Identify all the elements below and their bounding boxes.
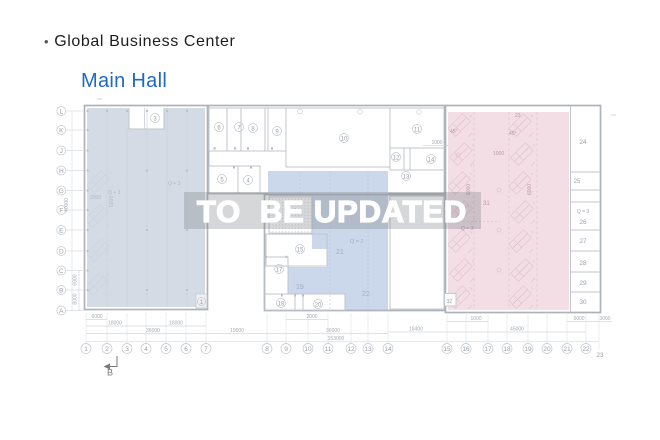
svg-text:Q + 3: Q + 3: [108, 190, 121, 196]
svg-text:9: 9: [284, 346, 288, 353]
svg-text:5: 5: [164, 346, 168, 353]
svg-text:3: 3: [153, 117, 157, 123]
svg-text:J: J: [60, 148, 63, 155]
svg-text:13: 13: [403, 175, 410, 181]
svg-text:22: 22: [582, 346, 590, 353]
svg-text:6: 6: [184, 346, 188, 353]
svg-text:40000: 40000: [64, 198, 70, 212]
svg-text:3: 3: [125, 346, 129, 353]
svg-text:18000: 18000: [169, 321, 183, 327]
svg-text:6000: 6000: [573, 316, 584, 322]
svg-text:2: 2: [105, 346, 109, 353]
svg-text:K: K: [59, 127, 64, 134]
svg-text:6000: 6000: [91, 314, 102, 320]
svg-text:1000: 1000: [493, 151, 504, 157]
svg-text:19000: 19000: [230, 328, 244, 334]
svg-text:14: 14: [384, 346, 392, 353]
svg-text:E: E: [59, 227, 64, 234]
svg-text:L: L: [59, 108, 63, 115]
svg-text:26: 26: [579, 219, 587, 226]
svg-text:4: 4: [144, 346, 148, 353]
svg-text:11: 11: [325, 346, 332, 353]
svg-text:15: 15: [297, 248, 304, 254]
svg-text:18400: 18400: [409, 327, 423, 333]
svg-text:A: A: [59, 308, 64, 315]
svg-text:20: 20: [543, 346, 551, 353]
svg-text:31: 31: [483, 201, 490, 207]
svg-text:23: 23: [515, 113, 521, 119]
svg-text:19: 19: [296, 284, 304, 291]
svg-text:18: 18: [278, 302, 285, 308]
svg-text:153000: 153000: [328, 336, 345, 342]
svg-text:B: B: [107, 368, 113, 378]
svg-text:B: B: [59, 287, 63, 294]
svg-text:6000: 6000: [73, 293, 79, 304]
svg-text:Q + 3: Q + 3: [168, 181, 181, 187]
svg-text:1000: 1000: [470, 316, 481, 322]
svg-text:C: C: [59, 268, 64, 275]
svg-text:12: 12: [347, 346, 355, 353]
svg-text:12: 12: [393, 156, 400, 162]
svg-text:19: 19: [524, 346, 532, 353]
svg-text:Q = 2: Q = 2: [350, 239, 364, 245]
svg-text:1: 1: [84, 346, 88, 353]
svg-text:14: 14: [428, 158, 435, 164]
svg-text:8: 8: [251, 127, 255, 133]
svg-text:18000: 18000: [108, 321, 122, 327]
svg-text:3000: 3000: [599, 316, 610, 322]
svg-text:30: 30: [579, 299, 587, 306]
svg-text:Q = 3: Q = 3: [577, 209, 590, 215]
svg-text:17: 17: [276, 268, 283, 274]
svg-text:24: 24: [579, 139, 587, 146]
svg-text:21: 21: [336, 249, 344, 256]
svg-text:23: 23: [596, 352, 604, 359]
svg-text:22: 22: [362, 291, 370, 298]
svg-text:29: 29: [579, 280, 587, 287]
svg-text:G: G: [59, 188, 64, 195]
svg-text:36000: 36000: [146, 328, 160, 334]
svg-text:45°: 45°: [509, 131, 517, 137]
svg-text:45000: 45000: [510, 327, 524, 333]
svg-text:25: 25: [574, 179, 581, 185]
svg-text:45°: 45°: [450, 129, 458, 135]
svg-text:6000: 6000: [109, 196, 115, 207]
svg-text:28: 28: [579, 260, 587, 267]
svg-text:9: 9: [275, 130, 279, 136]
svg-text:32: 32: [447, 299, 453, 305]
svg-text:11: 11: [414, 128, 421, 134]
svg-text:1000: 1000: [431, 140, 442, 146]
svg-text:2000: 2000: [306, 314, 317, 320]
svg-text:20: 20: [315, 303, 322, 309]
svg-text:4: 4: [246, 179, 250, 185]
svg-text:21: 21: [563, 346, 571, 353]
svg-text:2000: 2000: [90, 195, 101, 201]
svg-text:18: 18: [503, 346, 511, 353]
svg-text:13: 13: [364, 346, 372, 353]
svg-text:27: 27: [579, 238, 587, 245]
svg-text:17: 17: [484, 346, 492, 353]
svg-text:6: 6: [217, 126, 221, 132]
svg-text:8: 8: [265, 346, 269, 353]
svg-text:5: 5: [220, 178, 224, 184]
svg-text:6000: 6000: [527, 184, 533, 195]
svg-text:D: D: [59, 248, 64, 255]
svg-text:F: F: [59, 207, 63, 214]
svg-text:15: 15: [443, 346, 451, 353]
svg-text:6000: 6000: [73, 274, 79, 285]
svg-text:10: 10: [341, 137, 348, 143]
svg-text:TO BE UPDATED: TO BE UPDATED: [197, 194, 467, 229]
svg-text:10: 10: [304, 346, 312, 353]
svg-text:36000: 36000: [326, 328, 340, 334]
svg-text:H: H: [59, 168, 64, 175]
svg-text:7: 7: [204, 346, 208, 353]
svg-text:16: 16: [462, 346, 470, 353]
